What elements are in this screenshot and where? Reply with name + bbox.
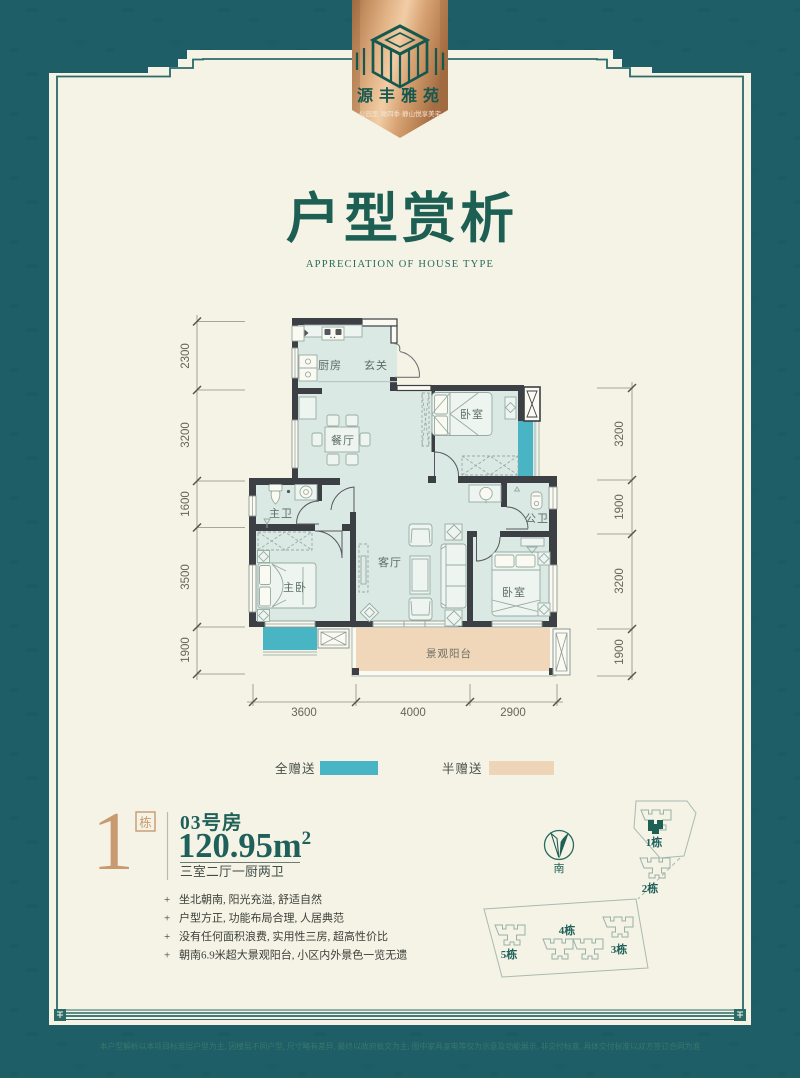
svg-text:卧室: 卧室 [460, 407, 484, 421]
svg-text:源丰雅苑: 源丰雅苑 [357, 86, 445, 105]
svg-text:本户型解析以本项目标准层户型为主, 因楼层不同户型, 尺寸略: 本户型解析以本项目标准层户型为主, 因楼层不同户型, 尺寸略有差异, 最终以政府… [100, 1041, 701, 1051]
svg-text:厨房: 厨房 [318, 359, 342, 372]
svg-text:120.95m2: 120.95m2 [178, 827, 311, 865]
svg-text:+: + [164, 950, 170, 962]
svg-text:主卫: 主卫 [269, 507, 293, 520]
svg-text:2900: 2900 [500, 707, 526, 719]
svg-text:户型方正, 功能布局合理, 人居典范: 户型方正, 功能布局合理, 人居典范 [179, 911, 344, 925]
svg-text:3600: 3600 [291, 707, 317, 719]
svg-text:3栋: 3栋 [611, 942, 628, 956]
svg-text:3500: 3500 [180, 564, 192, 590]
svg-text:2栋: 2栋 [642, 881, 659, 895]
svg-text:朝南6.9米超大景观阳台, 小区内外景色一览无遗: 朝南6.9米超大景观阳台, 小区内外景色一览无遗 [179, 948, 407, 962]
svg-text:坐北朝南, 阳光充溢, 舒适自然: 坐北朝南, 阳光充溢, 舒适自然 [179, 892, 322, 906]
svg-text:景观阳台: 景观阳台 [426, 647, 472, 660]
svg-text:+: + [164, 913, 170, 925]
svg-text:餐厅: 餐厅 [331, 433, 355, 447]
svg-text:公卫: 公卫 [525, 513, 549, 525]
svg-text:三室二厅一厨两卫: 三室二厅一厨两卫 [180, 864, 284, 879]
svg-text:1600: 1600 [180, 491, 192, 517]
svg-text:APPRECIATION OF HOUSE TYPE: APPRECIATION OF HOUSE TYPE [306, 259, 494, 270]
svg-text:南: 南 [554, 862, 565, 875]
svg-text:5栋: 5栋 [501, 947, 518, 961]
svg-text:玄关: 玄关 [364, 358, 388, 372]
svg-text:没有任何面积浪费, 实用性三房, 超高性价比: 没有任何面积浪费, 实用性三房, 超高性价比 [179, 929, 388, 943]
svg-text:3200: 3200 [614, 568, 626, 594]
svg-text:1: 1 [92, 795, 134, 888]
svg-text:+: + [164, 894, 170, 906]
svg-text:半赠送: 半赠送 [442, 761, 483, 776]
svg-text:+: + [164, 931, 170, 943]
svg-text:栋: 栋 [139, 815, 152, 830]
svg-text:1900: 1900 [180, 637, 192, 663]
svg-text:主卧: 主卧 [283, 581, 307, 594]
svg-text:客厅: 客厅 [378, 555, 402, 569]
svg-text:2300: 2300 [180, 343, 192, 369]
svg-text:全赠送: 全赠送 [275, 761, 316, 776]
svg-text:1900: 1900 [614, 639, 626, 665]
svg-text:4栋: 4栋 [559, 923, 576, 937]
svg-text:3200: 3200 [614, 421, 626, 447]
svg-text:4000: 4000 [400, 707, 426, 719]
svg-text:户型赏析: 户型赏析 [286, 189, 518, 249]
svg-text:3200: 3200 [180, 422, 192, 448]
svg-text:1栋: 1栋 [646, 835, 663, 849]
svg-text:公园里·瞰四季·静山悦享美宅: 公园里·瞰四季·静山悦享美宅 [359, 109, 442, 118]
svg-text:1900: 1900 [614, 494, 626, 520]
svg-text:卧室: 卧室 [502, 585, 526, 599]
